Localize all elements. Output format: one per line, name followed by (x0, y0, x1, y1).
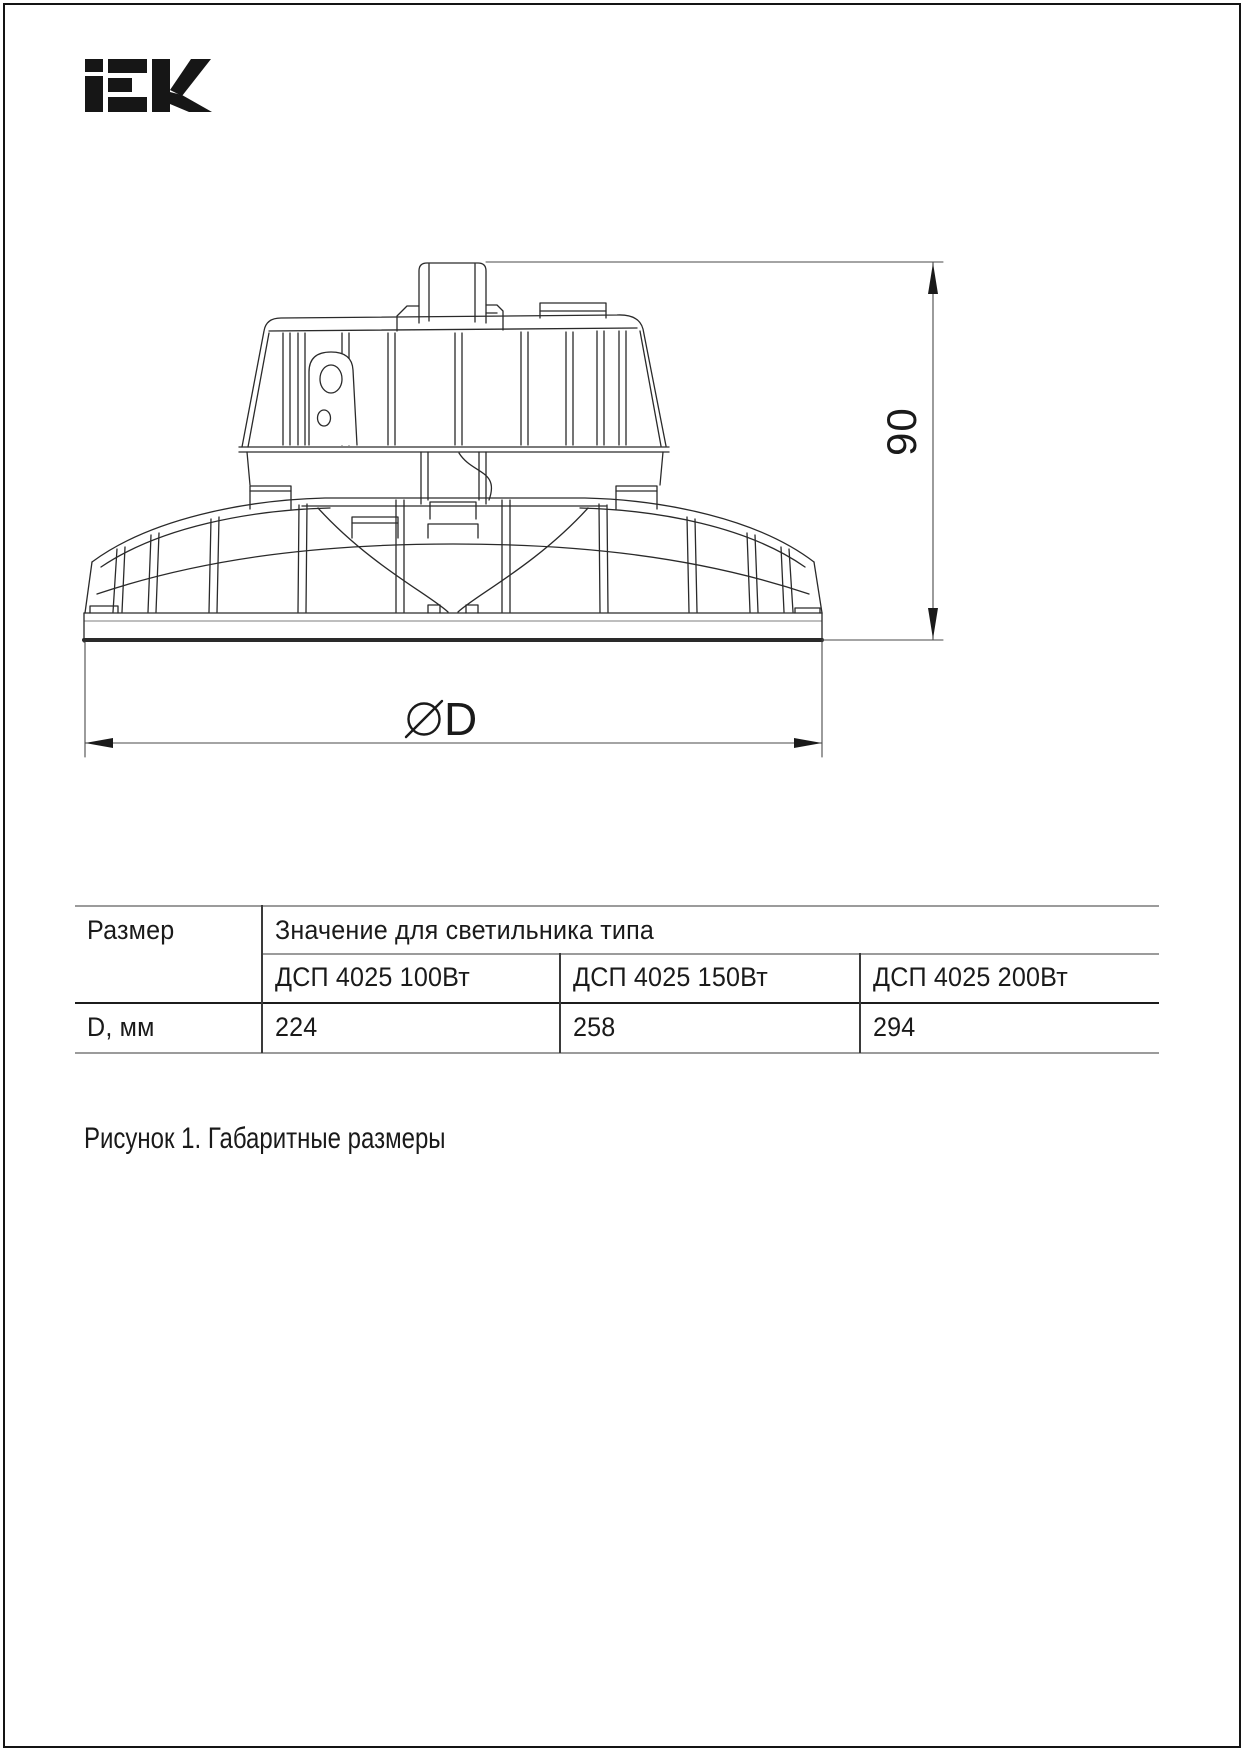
table-value-100w: 224 (275, 1012, 317, 1043)
bracket-tab (309, 352, 357, 445)
figure-caption: Рисунок 1. Габаритные размеры (84, 1122, 446, 1156)
saucer-body (85, 498, 822, 613)
dimension-height-label: 90 (878, 407, 925, 456)
document-page: 90 D Размер Значение (0, 0, 1244, 1751)
table-border-bottom (75, 1052, 1159, 1054)
table-value-150w: 258 (573, 1012, 615, 1043)
table-col-200w: ДСП 4025 200Вт (873, 962, 1068, 993)
table-value-200w: 294 (873, 1012, 915, 1043)
height-dimension (486, 262, 943, 640)
table-border-subheader (262, 953, 1159, 955)
table-row-label: D, мм (87, 1012, 155, 1043)
upper-housing (239, 315, 669, 452)
table-header-size: Размер (87, 915, 174, 946)
dimension-diameter-label: D (444, 693, 477, 745)
table-border-top (75, 905, 1159, 907)
mounting-post (397, 263, 503, 331)
table-divider-1 (261, 905, 263, 1053)
table-header-span: Значение для светильника типа (275, 915, 654, 946)
table-col-150w: ДСП 4025 150Вт (573, 962, 768, 993)
table-divider-2 (559, 953, 561, 1053)
diameter-symbol (406, 701, 442, 737)
bottom-rim (84, 605, 822, 642)
table-border-datarow (75, 1002, 1159, 1004)
technical-drawing: 90 D (0, 0, 1244, 1751)
table-col-100w: ДСП 4025 100Вт (275, 962, 470, 993)
table-divider-3 (859, 953, 861, 1053)
